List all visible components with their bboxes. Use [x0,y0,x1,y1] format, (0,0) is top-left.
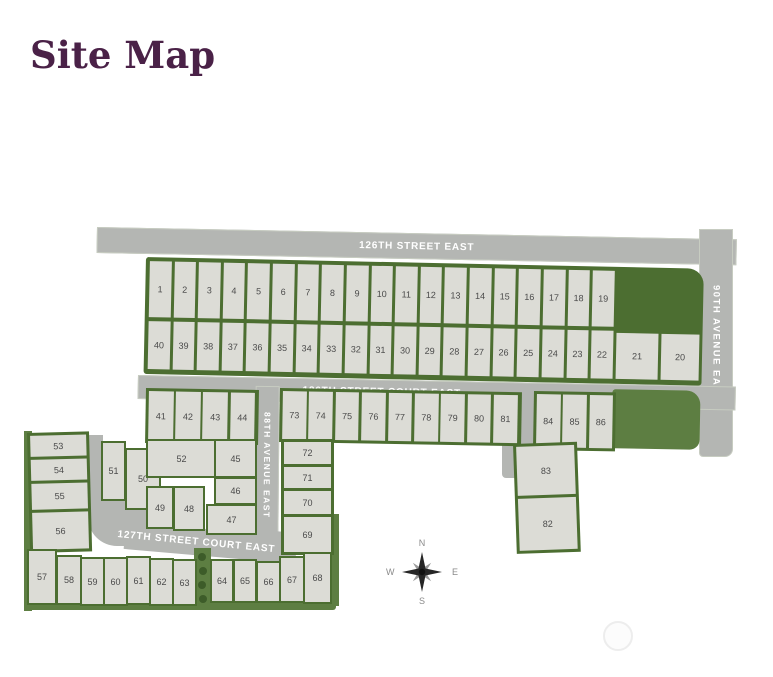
lot-65[interactable]: 65 [233,559,257,603]
compass-east-label: E [452,567,458,577]
lot-51[interactable]: 51 [101,441,126,501]
lot-45[interactable]: 45 [214,439,257,478]
compass-north-label: N [419,538,426,548]
lot-60[interactable]: 60 [103,557,128,606]
floating-circle-button[interactable] [603,621,633,651]
lot-63[interactable]: 63 [172,559,197,606]
lot-49[interactable]: 49 [146,486,174,529]
lot-48[interactable]: 48 [173,486,205,531]
lot-52[interactable]: 52 [146,439,217,478]
lot-57[interactable]: 57 [27,549,57,605]
lot-46[interactable]: 46 [214,477,257,505]
compass-rose: N S W E [386,538,458,606]
compass-west-label: W [386,567,395,577]
compass-star-icon [402,552,442,592]
lot-68[interactable]: 68 [303,552,332,604]
lot-59[interactable]: 59 [80,557,105,606]
lot-58[interactable]: 58 [56,555,82,605]
lot-66[interactable]: 66 [256,561,281,603]
lot-64[interactable]: 64 [210,559,234,603]
lot-61[interactable]: 61 [126,556,151,605]
compass-south-label: S [419,596,425,606]
lot-62[interactable]: 62 [149,558,174,606]
site-map-page: Site Map 126TH STREET EAST 90TH AVENUE E… [0,0,773,677]
lot-47[interactable]: 47 [206,504,257,535]
lot-67[interactable]: 67 [279,556,305,603]
